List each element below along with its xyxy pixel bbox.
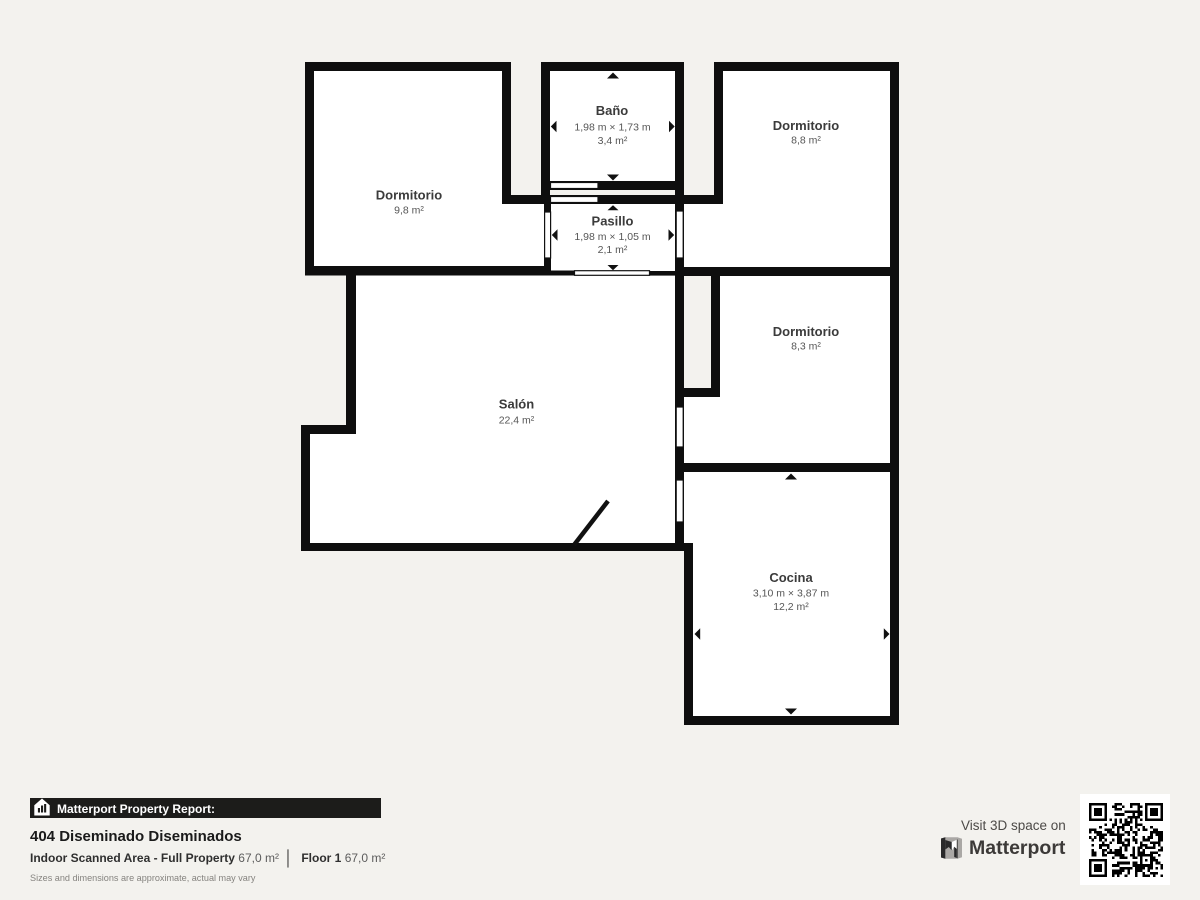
svg-text:Salón: Salón xyxy=(499,397,534,412)
svg-text:3,4 m²: 3,4 m² xyxy=(598,135,628,147)
svg-text:Pasillo: Pasillo xyxy=(592,214,634,229)
svg-text:1,98 m × 1,73 m: 1,98 m × 1,73 m xyxy=(574,121,650,133)
svg-text:9,8 m²: 9,8 m² xyxy=(394,205,424,217)
svg-text:Dormitorio: Dormitorio xyxy=(376,187,443,202)
svg-text:Dormitorio: Dormitorio xyxy=(773,118,840,133)
svg-text:Cocina: Cocina xyxy=(769,570,813,585)
svg-text:8,8 m²: 8,8 m² xyxy=(791,135,821,147)
svg-text:Dormitorio: Dormitorio xyxy=(773,324,840,339)
svg-text:3,10 m × 3,87 m: 3,10 m × 3,87 m xyxy=(753,587,829,599)
svg-text:2,1 m²: 2,1 m² xyxy=(598,244,628,256)
svg-text:Baño: Baño xyxy=(596,103,629,118)
svg-text:1,98 m × 1,05 m: 1,98 m × 1,05 m xyxy=(574,231,650,243)
svg-text:12,2 m²: 12,2 m² xyxy=(773,601,809,613)
svg-text:22,4 m²: 22,4 m² xyxy=(499,414,535,426)
svg-text:8,3 m²: 8,3 m² xyxy=(791,341,821,353)
